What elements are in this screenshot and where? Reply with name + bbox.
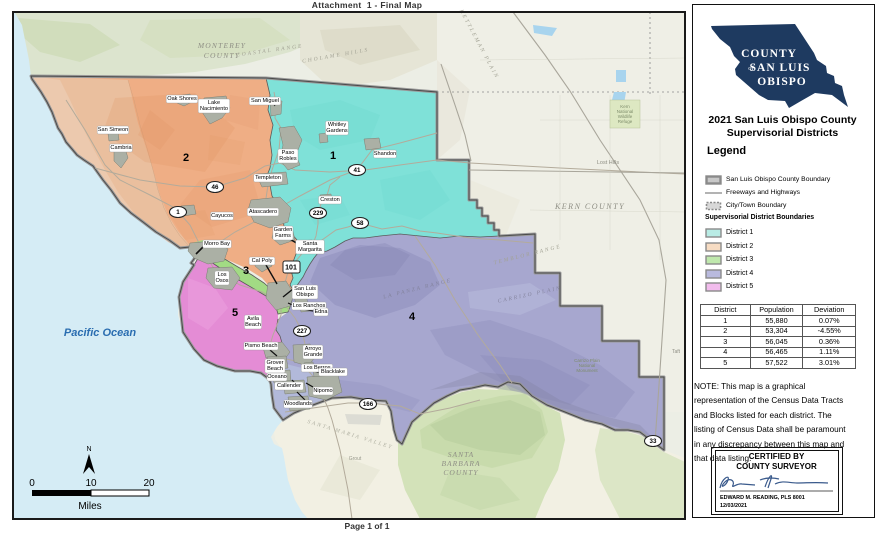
- svg-text:Templeton: Templeton: [255, 175, 281, 181]
- svg-text:166: 166: [363, 401, 374, 408]
- svg-text:SAN LUIS: SAN LUIS: [750, 62, 811, 74]
- svg-text:41: 41: [354, 167, 361, 174]
- svg-text:0: 0: [29, 478, 35, 489]
- svg-text:COUNTY: COUNTY: [741, 48, 797, 60]
- svg-text:33: 33: [650, 438, 657, 445]
- svg-text:Grout: Grout: [349, 456, 362, 462]
- svg-text:COUNTY: COUNTY: [443, 468, 478, 477]
- svg-text:Cayucos: Cayucos: [211, 213, 233, 219]
- svg-text:1: 1: [176, 209, 180, 216]
- svg-text:Atascadero: Atascadero: [249, 209, 277, 215]
- svg-text:Robles: Robles: [279, 156, 297, 162]
- svg-text:101: 101: [285, 265, 297, 272]
- svg-text:Farms: Farms: [275, 233, 291, 239]
- svg-text:5: 5: [232, 307, 238, 319]
- svg-text:Cambria: Cambria: [110, 145, 132, 151]
- svg-text:46: 46: [212, 184, 219, 191]
- svg-text:Morro Bay: Morro Bay: [204, 241, 230, 247]
- svg-text:227: 227: [297, 328, 308, 335]
- svg-text:Nacimiento: Nacimiento: [200, 106, 228, 112]
- svg-text:3: 3: [243, 265, 249, 277]
- svg-text:Margarita: Margarita: [298, 247, 323, 253]
- svg-text:BARBARA: BARBARA: [441, 459, 480, 468]
- svg-text:San Miguel: San Miguel: [251, 98, 279, 104]
- svg-text:Pacific Ocean: Pacific Ocean: [64, 327, 136, 339]
- svg-text:Beach: Beach: [245, 322, 261, 328]
- svg-text:KERN COUNTY: KERN COUNTY: [554, 202, 625, 211]
- svg-text:Shandon: Shandon: [374, 151, 396, 157]
- svg-text:MONTEREY: MONTEREY: [197, 41, 246, 50]
- svg-text:1: 1: [330, 150, 336, 162]
- svg-text:Oceano: Oceano: [267, 374, 287, 380]
- svg-text:Beach: Beach: [267, 366, 283, 372]
- svg-text:SANTA: SANTA: [448, 450, 475, 459]
- svg-text:Miles: Miles: [78, 501, 101, 512]
- svg-text:Cal Poly: Cal Poly: [252, 258, 273, 264]
- svg-text:Taft: Taft: [672, 349, 681, 355]
- svg-text:Monument: Monument: [576, 368, 598, 373]
- svg-text:Refuge: Refuge: [618, 119, 633, 124]
- svg-text:OBISPO: OBISPO: [757, 76, 806, 88]
- svg-text:229: 229: [313, 210, 324, 217]
- svg-text:10: 10: [85, 478, 97, 489]
- svg-text:Blacklake: Blacklake: [321, 369, 345, 375]
- svg-text:COUNTY: COUNTY: [204, 51, 240, 60]
- svg-text:20: 20: [143, 478, 155, 489]
- svg-text:4: 4: [409, 311, 416, 323]
- svg-text:Lost Hills: Lost Hills: [597, 160, 620, 166]
- svg-text:Pismo Beach: Pismo Beach: [245, 343, 278, 349]
- svg-text:Creston: Creston: [320, 197, 340, 203]
- svg-text:Grande: Grande: [304, 352, 323, 358]
- svg-text:San Simeon: San Simeon: [98, 127, 128, 133]
- svg-text:2: 2: [183, 152, 189, 164]
- svg-text:Callender: Callender: [277, 383, 301, 389]
- svg-text:Edna: Edna: [314, 309, 328, 315]
- svg-text:Oak Shores: Oak Shores: [167, 96, 197, 102]
- svg-text:Nipomo: Nipomo: [313, 388, 332, 394]
- svg-text:Woodlands: Woodlands: [284, 401, 312, 407]
- svg-text:Osos: Osos: [215, 278, 228, 284]
- svg-text:N: N: [86, 446, 91, 453]
- svg-text:58: 58: [357, 220, 364, 227]
- svg-text:Obispo: Obispo: [296, 292, 314, 298]
- svg-text:Gardens: Gardens: [326, 128, 348, 134]
